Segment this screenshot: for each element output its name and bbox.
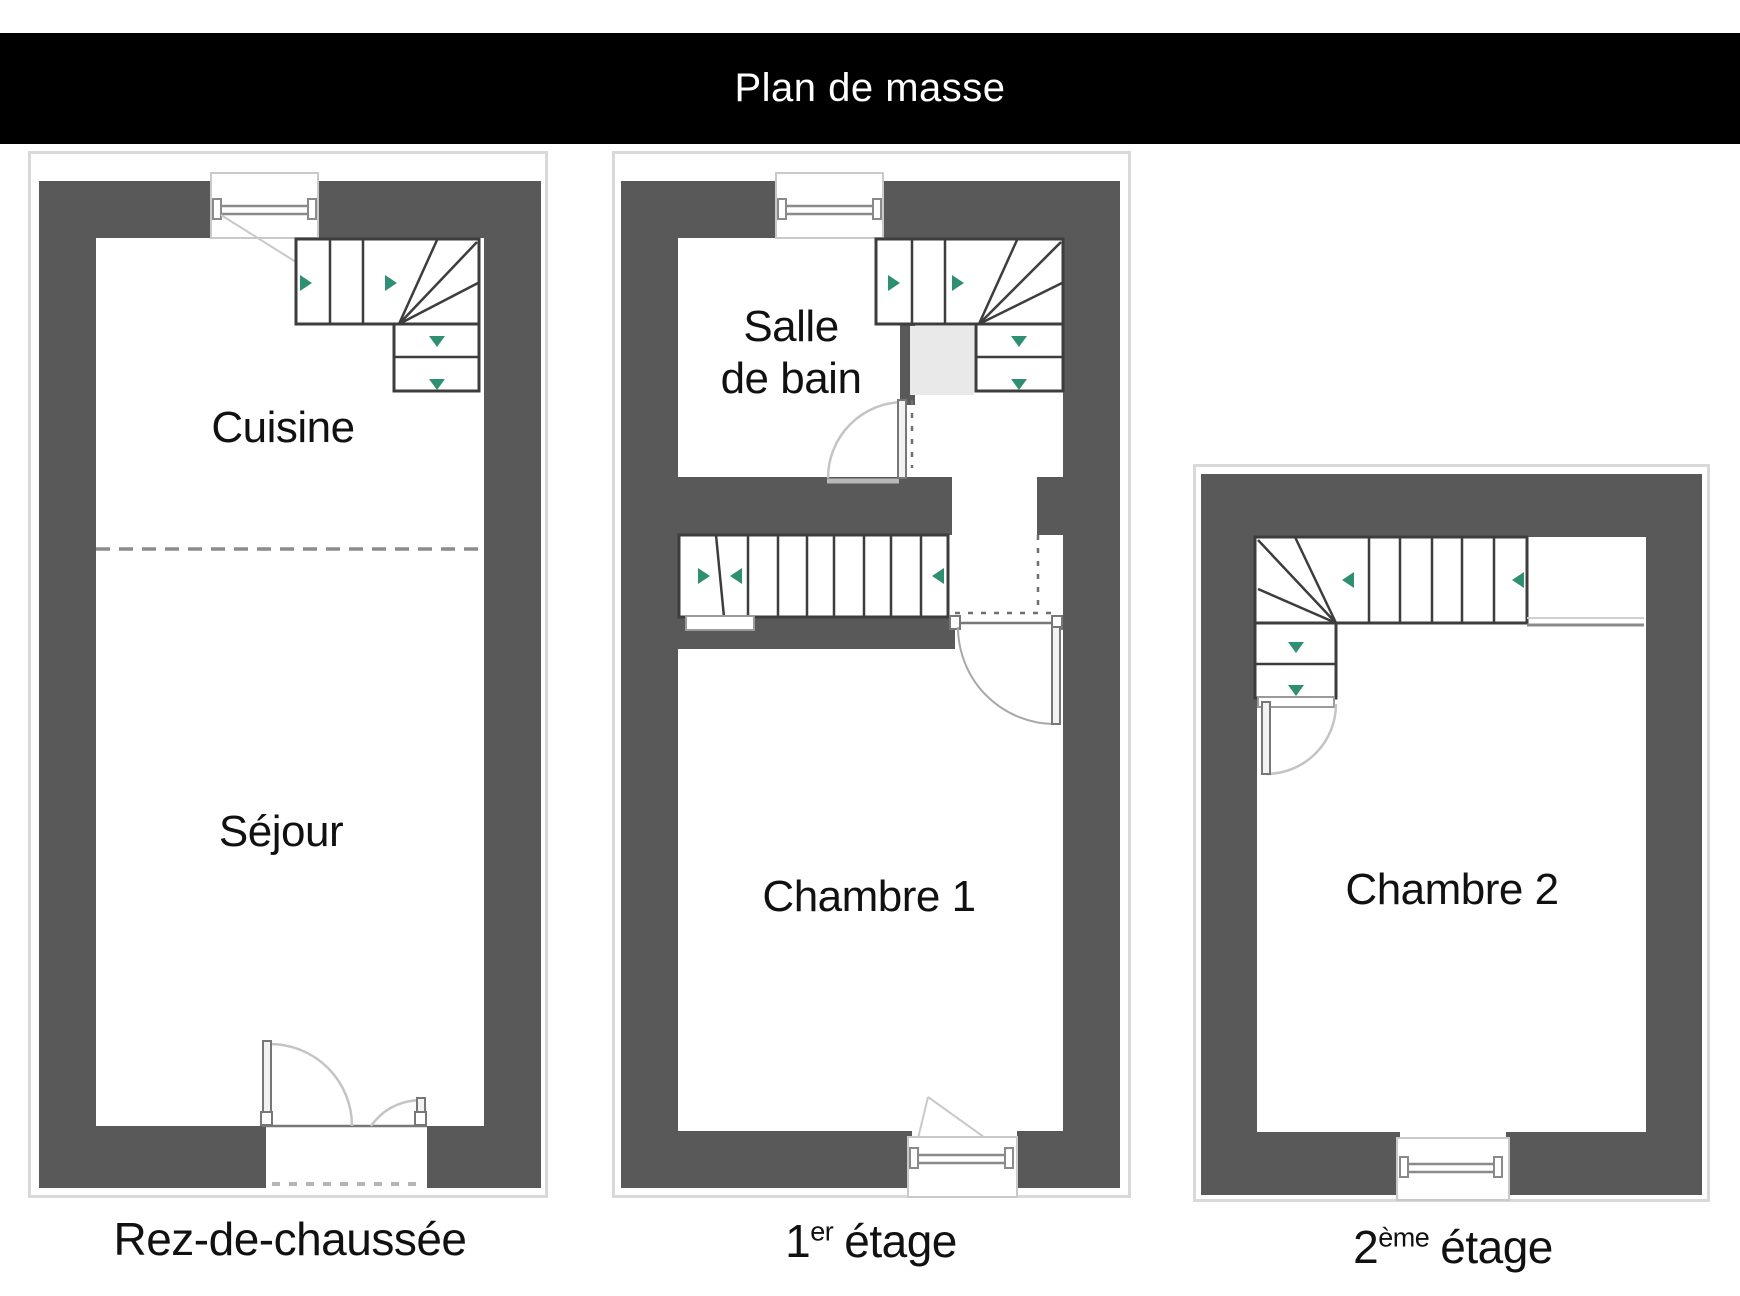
caption-rez-de-chaussee: Rez-de-chaussée [113,1212,466,1266]
interior-wall-stub [1037,477,1063,535]
interior-wall [621,477,952,535]
window-icon [211,173,318,238]
caption-2eme-etage: 2èmeétage [1353,1220,1553,1274]
door-leaf [1262,702,1270,774]
floor-plan-etage1 [614,153,1130,1198]
door-leaf [898,400,906,478]
room-label-chambre-2: Chambre 2 [1345,865,1558,915]
interior-wall [621,617,955,649]
bedroom1-door [950,616,1063,724]
staircase [1255,537,1527,707]
room-label-salle-de-bain: Salle de bain [721,301,862,405]
bathroom-door [827,400,912,481]
bedroom2-door [1262,702,1336,774]
staircase [296,239,479,391]
stair-landing-shade [910,326,974,395]
floor-plan-etage2 [1195,466,1709,1201]
window-icon [908,1097,1017,1197]
slide: Plan de masse [0,0,1740,1296]
room-label-chambre-1: Chambre 1 [762,872,975,922]
caption-1er-etage: 1erétage [785,1214,957,1268]
floor-plan-rdc [30,153,547,1197]
door-opening [266,1124,427,1190]
window-icon [1397,1138,1509,1200]
door-leaf [1052,627,1060,724]
floor-plans-drawing [0,0,1740,1296]
window-icon [776,173,883,238]
staircase-lower [679,535,948,630]
room-label-sejour: Séjour [219,807,343,857]
room-label-cuisine: Cuisine [211,403,354,453]
